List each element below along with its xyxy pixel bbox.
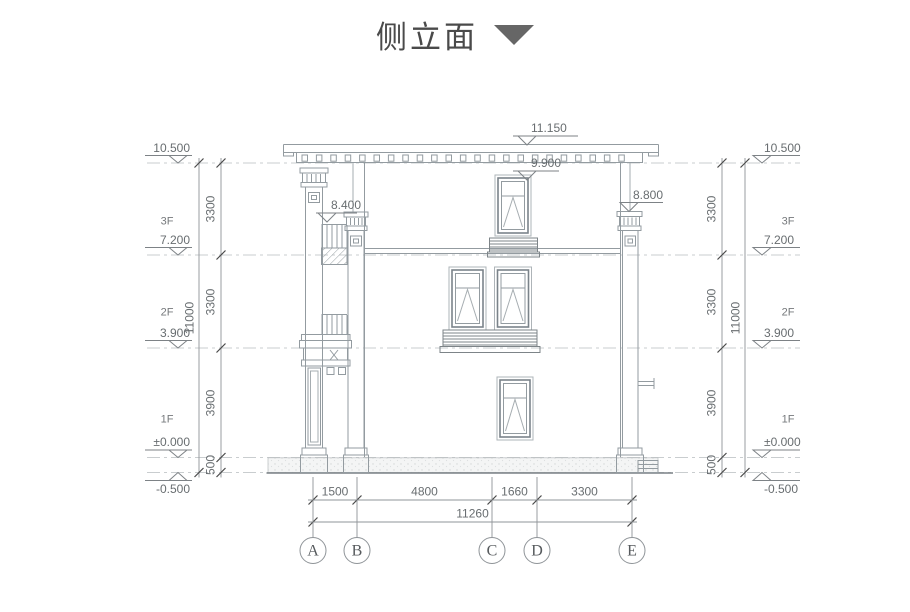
elevation-drawing-canvas: 侧立面 xyxy=(0,0,910,612)
floor-label-left: 3F xyxy=(161,216,174,229)
vertical-dim-label: 500 xyxy=(205,455,218,475)
floor-label-left: 1F xyxy=(161,414,174,427)
window-2f-right xyxy=(495,267,532,330)
horizontal-dim-label: 11260 xyxy=(456,508,488,521)
floor-label-left: 2F xyxy=(161,307,174,320)
elevation-label-top: 9.900 xyxy=(531,157,561,170)
vertical-dim-label: 3300 xyxy=(706,288,719,315)
balcony-2f xyxy=(300,315,352,375)
level-label-right: -0.500 xyxy=(764,483,824,496)
vertical-dim-label: 3300 xyxy=(205,288,218,315)
elevation-label-top: 8.400 xyxy=(331,199,361,212)
horizontal-dim-label: 4800 xyxy=(411,486,438,499)
floor-label-right: 3F xyxy=(782,216,795,229)
vertical-dim-label: 11000 xyxy=(184,302,197,334)
level-dashdot-lines xyxy=(147,163,800,473)
window-3f xyxy=(495,175,531,236)
level-label-right: ±0.000 xyxy=(764,436,824,449)
floor-label-right: 2F xyxy=(782,307,795,320)
elevation-label-top: 11.150 xyxy=(531,122,567,135)
floor-label-right: 1F xyxy=(782,414,795,427)
grid-bubble-d: D xyxy=(531,544,543,557)
roof-slab xyxy=(284,145,659,163)
plinth-band xyxy=(268,458,658,473)
vertical-dim-label: 3300 xyxy=(205,196,218,223)
elevation-label-top: 8.800 xyxy=(633,189,663,202)
horizontal-dim-label: 1500 xyxy=(322,486,349,499)
level-label-left: 10.500 xyxy=(145,142,190,155)
level-label-left: 7.200 xyxy=(145,234,190,247)
level-label-left: -0.500 xyxy=(145,483,190,496)
vertical-dim-label: 500 xyxy=(706,455,719,475)
dimension-linework xyxy=(145,136,800,564)
louver-box-3f xyxy=(488,238,540,257)
window-1f xyxy=(497,377,533,440)
floor-slab-band xyxy=(365,249,621,254)
horizontal-dim-label: 1660 xyxy=(501,486,528,499)
porch-column-a xyxy=(300,168,328,473)
grid-bubble-b: B xyxy=(352,544,363,557)
vertical-dim-label: 3300 xyxy=(706,196,719,223)
louver-box-2f xyxy=(440,330,540,353)
level-label-right: 10.500 xyxy=(764,142,824,155)
level-label-left: ±0.000 xyxy=(145,436,190,449)
vertical-dim-label: 11000 xyxy=(730,302,743,334)
window-2f-left xyxy=(449,267,486,330)
grid-bubble-e: E xyxy=(627,544,637,557)
building-elevation-linework xyxy=(0,0,910,612)
level-label-right: 3.900 xyxy=(764,327,824,340)
grid-bubble-c: C xyxy=(487,544,498,557)
grid-bubble-a: A xyxy=(307,544,319,557)
wall-pipe xyxy=(639,378,655,389)
vertical-dim-label: 3900 xyxy=(706,389,719,416)
horizontal-dim-label: 3300 xyxy=(571,486,598,499)
roof-dentil-band xyxy=(302,155,624,161)
vertical-dim-label: 3900 xyxy=(205,389,218,416)
level-label-right: 7.200 xyxy=(764,234,824,247)
balcony-3f xyxy=(322,225,348,265)
